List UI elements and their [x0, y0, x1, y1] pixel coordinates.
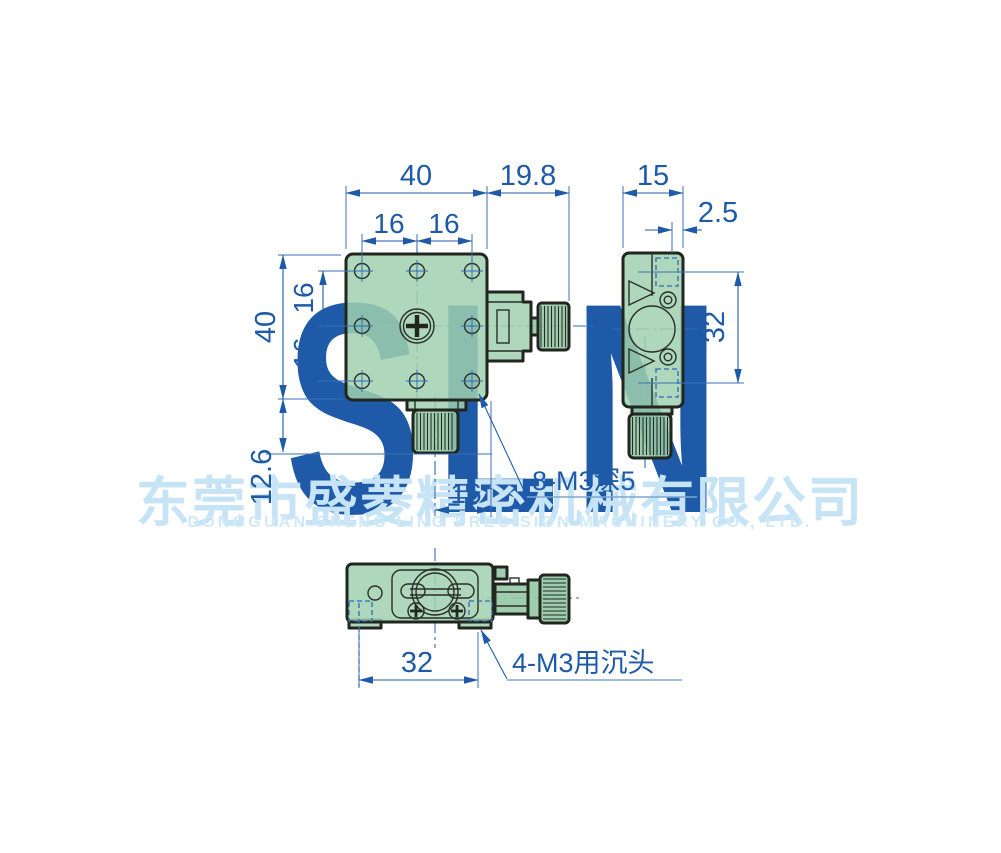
side-body	[623, 253, 683, 407]
dim-front-height-value: 40	[250, 311, 282, 343]
dimension-front-height: 40	[250, 255, 343, 399]
front-view	[333, 243, 593, 462]
dimension-side-offset: 2.5	[645, 197, 738, 253]
callout-countersunk-holes-text: 4-M3用沉头	[512, 648, 655, 678]
dim-side-offset-value: 2.5	[698, 197, 738, 229]
dim-front-width-value: 40	[400, 160, 432, 192]
callout-countersunk-holes: 4-M3用沉头	[481, 630, 682, 680]
dim-pitch-h1-value: 16	[373, 208, 404, 239]
dim-side-width-value: 15	[637, 160, 669, 192]
dimension-countersink-span: 32	[359, 630, 478, 688]
base-body	[347, 564, 493, 622]
technical-drawing: 40 19.8 15 2.5 16 16 40	[0, 0, 1001, 853]
dimension-side-width: 15	[623, 160, 683, 248]
dim-knob-extension-value: 19.8	[500, 160, 556, 192]
callout-tapped-holes-text: 8-M3深5	[532, 466, 636, 496]
dim-pitch-h2-value: 16	[428, 208, 459, 239]
dim-countersink-span-value: 32	[401, 647, 433, 679]
dim-side-hole-span-value: 32	[699, 311, 731, 343]
side-view	[612, 253, 700, 468]
dim-pitch-v2-value: 16	[288, 337, 319, 368]
dim-knob-drop-value: 12.6	[246, 449, 278, 505]
drawing-canvas: SLN 东莞市盛菱精密机械有限公司 DONGGUAN SHENG LING PR…	[0, 0, 1001, 853]
dim-base-knob-offset-value: 16	[450, 478, 481, 509]
dim-pitch-v1-value: 16	[288, 282, 319, 313]
x-adjustment-knob	[538, 303, 569, 350]
dimension-knob-extension: 19.8	[487, 160, 569, 301]
dimension-front-hole-pitch-left: 16 16	[288, 271, 353, 381]
y-adjustment-knob	[413, 410, 458, 453]
